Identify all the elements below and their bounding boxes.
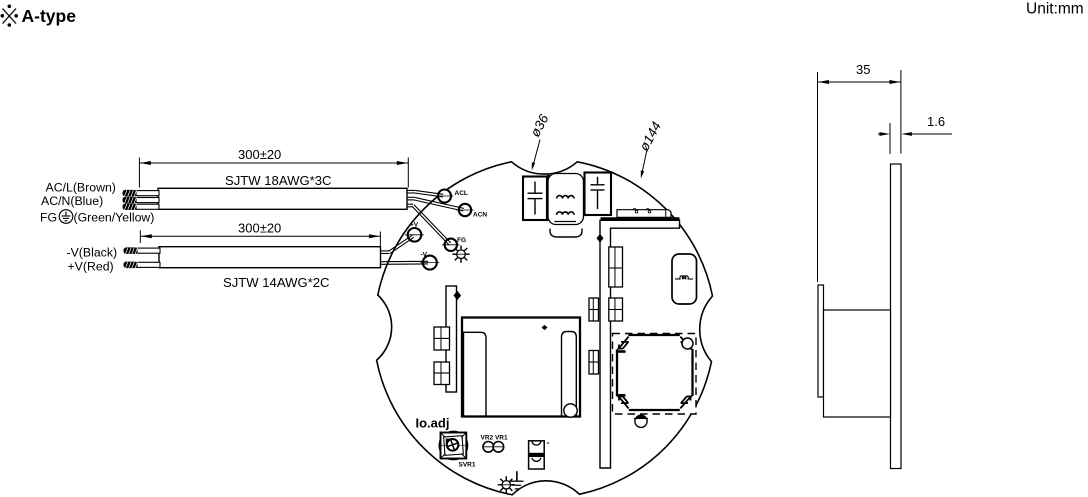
svg-text:A-type: A-type: [22, 6, 77, 26]
svg-text:FG: FG: [457, 237, 466, 244]
svg-text:Unit:mm: Unit:mm: [1026, 1, 1084, 18]
svg-text:(Green/Yellow): (Green/Yellow): [74, 210, 155, 224]
svg-text:SVR1: SVR1: [459, 462, 476, 469]
svg-text:+V: +V: [410, 222, 419, 229]
svg-text:ACN: ACN: [473, 212, 487, 219]
svg-text:300±20: 300±20: [238, 221, 281, 236]
svg-text:AC/L(Brown): AC/L(Brown): [46, 181, 116, 195]
svg-text:AC/N(Blue): AC/N(Blue): [41, 194, 103, 208]
svg-text:+V(Red): +V(Red): [68, 260, 114, 274]
svg-text:-V(Black): -V(Black): [67, 246, 118, 260]
svg-text:300±20: 300±20: [238, 147, 281, 162]
svg-text:SJTW 14AWG*2C: SJTW 14AWG*2C: [223, 275, 329, 290]
svg-text:1.6: 1.6: [927, 114, 945, 129]
svg-text:35: 35: [856, 62, 870, 77]
svg-text:ACL: ACL: [455, 190, 468, 197]
svg-text:FG: FG: [40, 210, 57, 224]
svg-text:SJTW 18AWG*3C: SJTW 18AWG*3C: [225, 173, 331, 188]
svg-text:VR2 VR1: VR2 VR1: [481, 435, 508, 442]
svg-text:-V: -V: [421, 252, 428, 259]
svg-text:Io.adj: Io.adj: [416, 416, 450, 431]
